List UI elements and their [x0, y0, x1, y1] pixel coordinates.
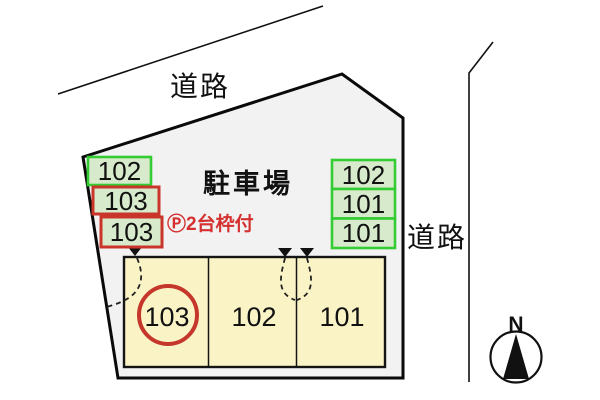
road-label-right: 道路 — [407, 222, 467, 253]
parking-site-plan: 道路 道路 駐車場 103 102 101 102 103 1 — [0, 0, 600, 400]
unit-label-103: 103 — [144, 302, 189, 332]
stall-label: 101 — [342, 218, 385, 248]
stall-label: 103 — [110, 217, 153, 247]
stall-label: 102 — [98, 156, 141, 186]
road-edge-right-line — [469, 42, 493, 382]
stall-label: 103 — [104, 186, 147, 216]
unit-label-102: 102 — [231, 302, 276, 332]
parking-area-label: 駐車場 — [203, 169, 293, 199]
unit-label-101: 101 — [319, 302, 364, 332]
site-plan-svg: 道路 道路 駐車場 103 102 101 102 103 1 — [0, 0, 600, 400]
compass: N — [491, 313, 542, 383]
note-label: Ⓟ2台枠付 — [167, 212, 254, 235]
right-stall-stack: 102 101 101 — [332, 160, 395, 248]
road-label-top: 道路 — [170, 71, 230, 102]
stall-label: 102 — [342, 160, 385, 190]
stall-label: 101 — [342, 189, 385, 219]
